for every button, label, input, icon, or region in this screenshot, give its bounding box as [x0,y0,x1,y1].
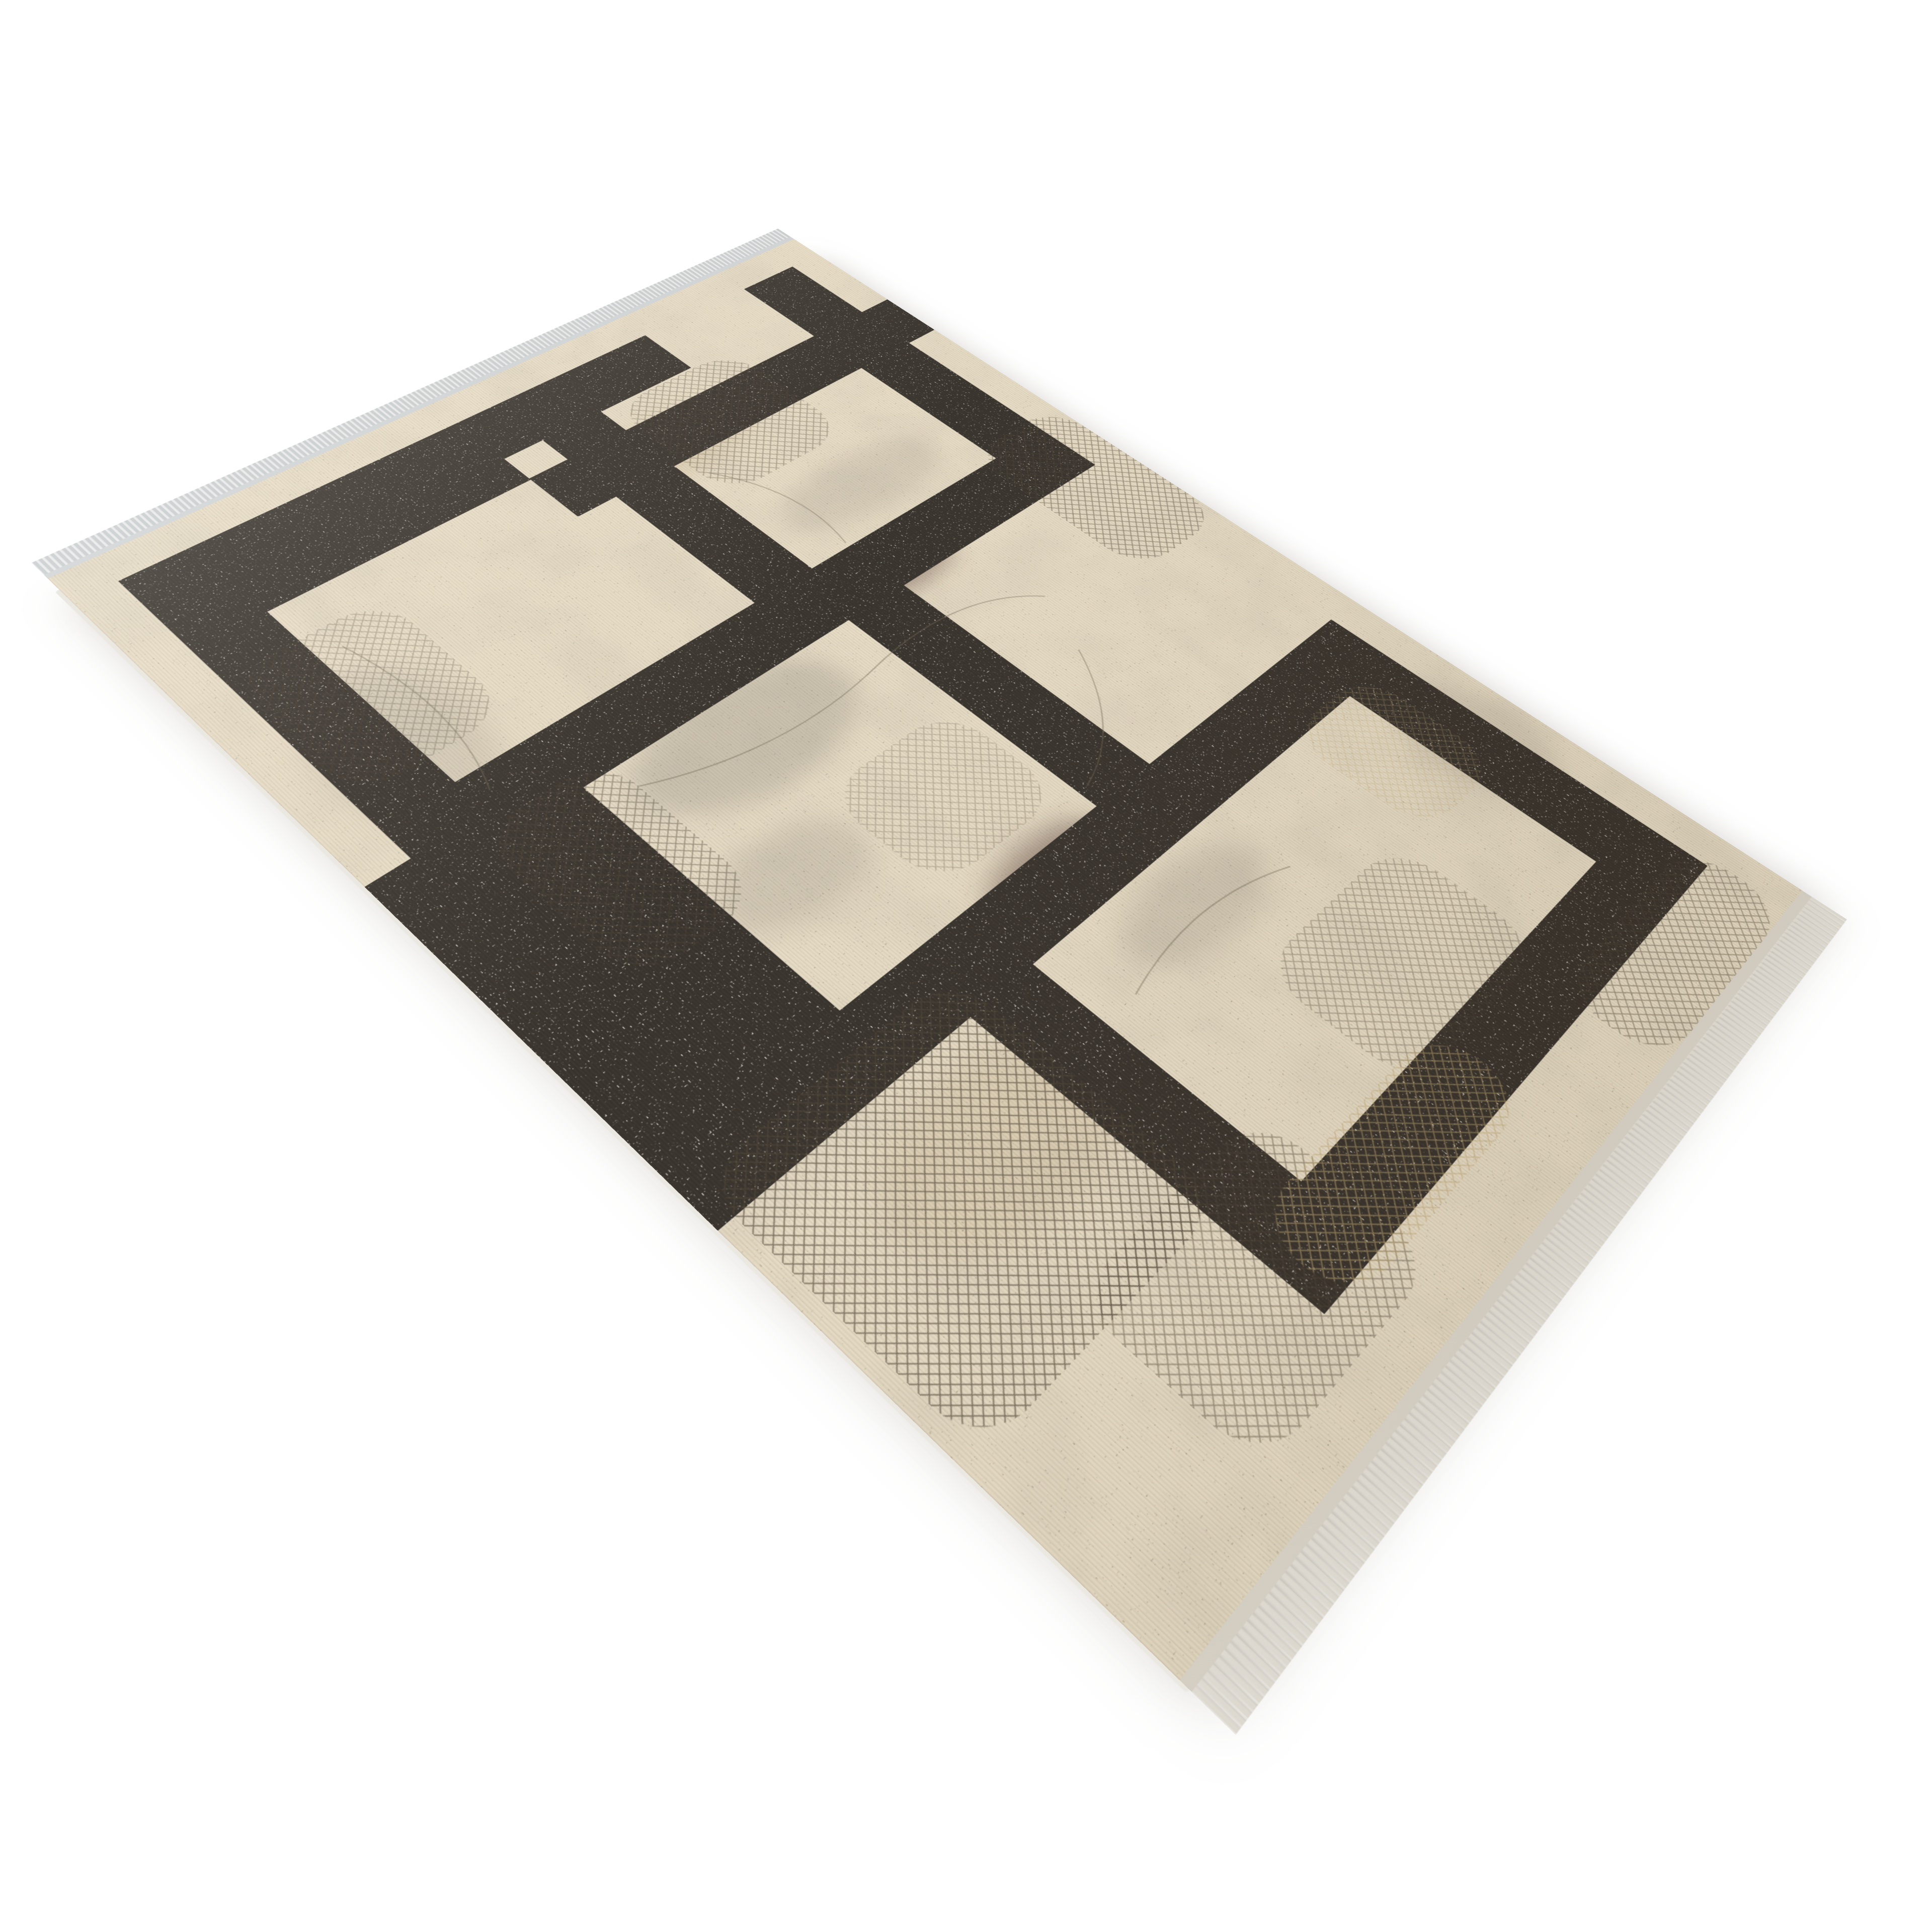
rug-surface [48,239,1802,1680]
rug-artwork [29,227,1858,1748]
product-photo-scene: 3D product photo of a rectangular beige … [0,0,1932,1932]
